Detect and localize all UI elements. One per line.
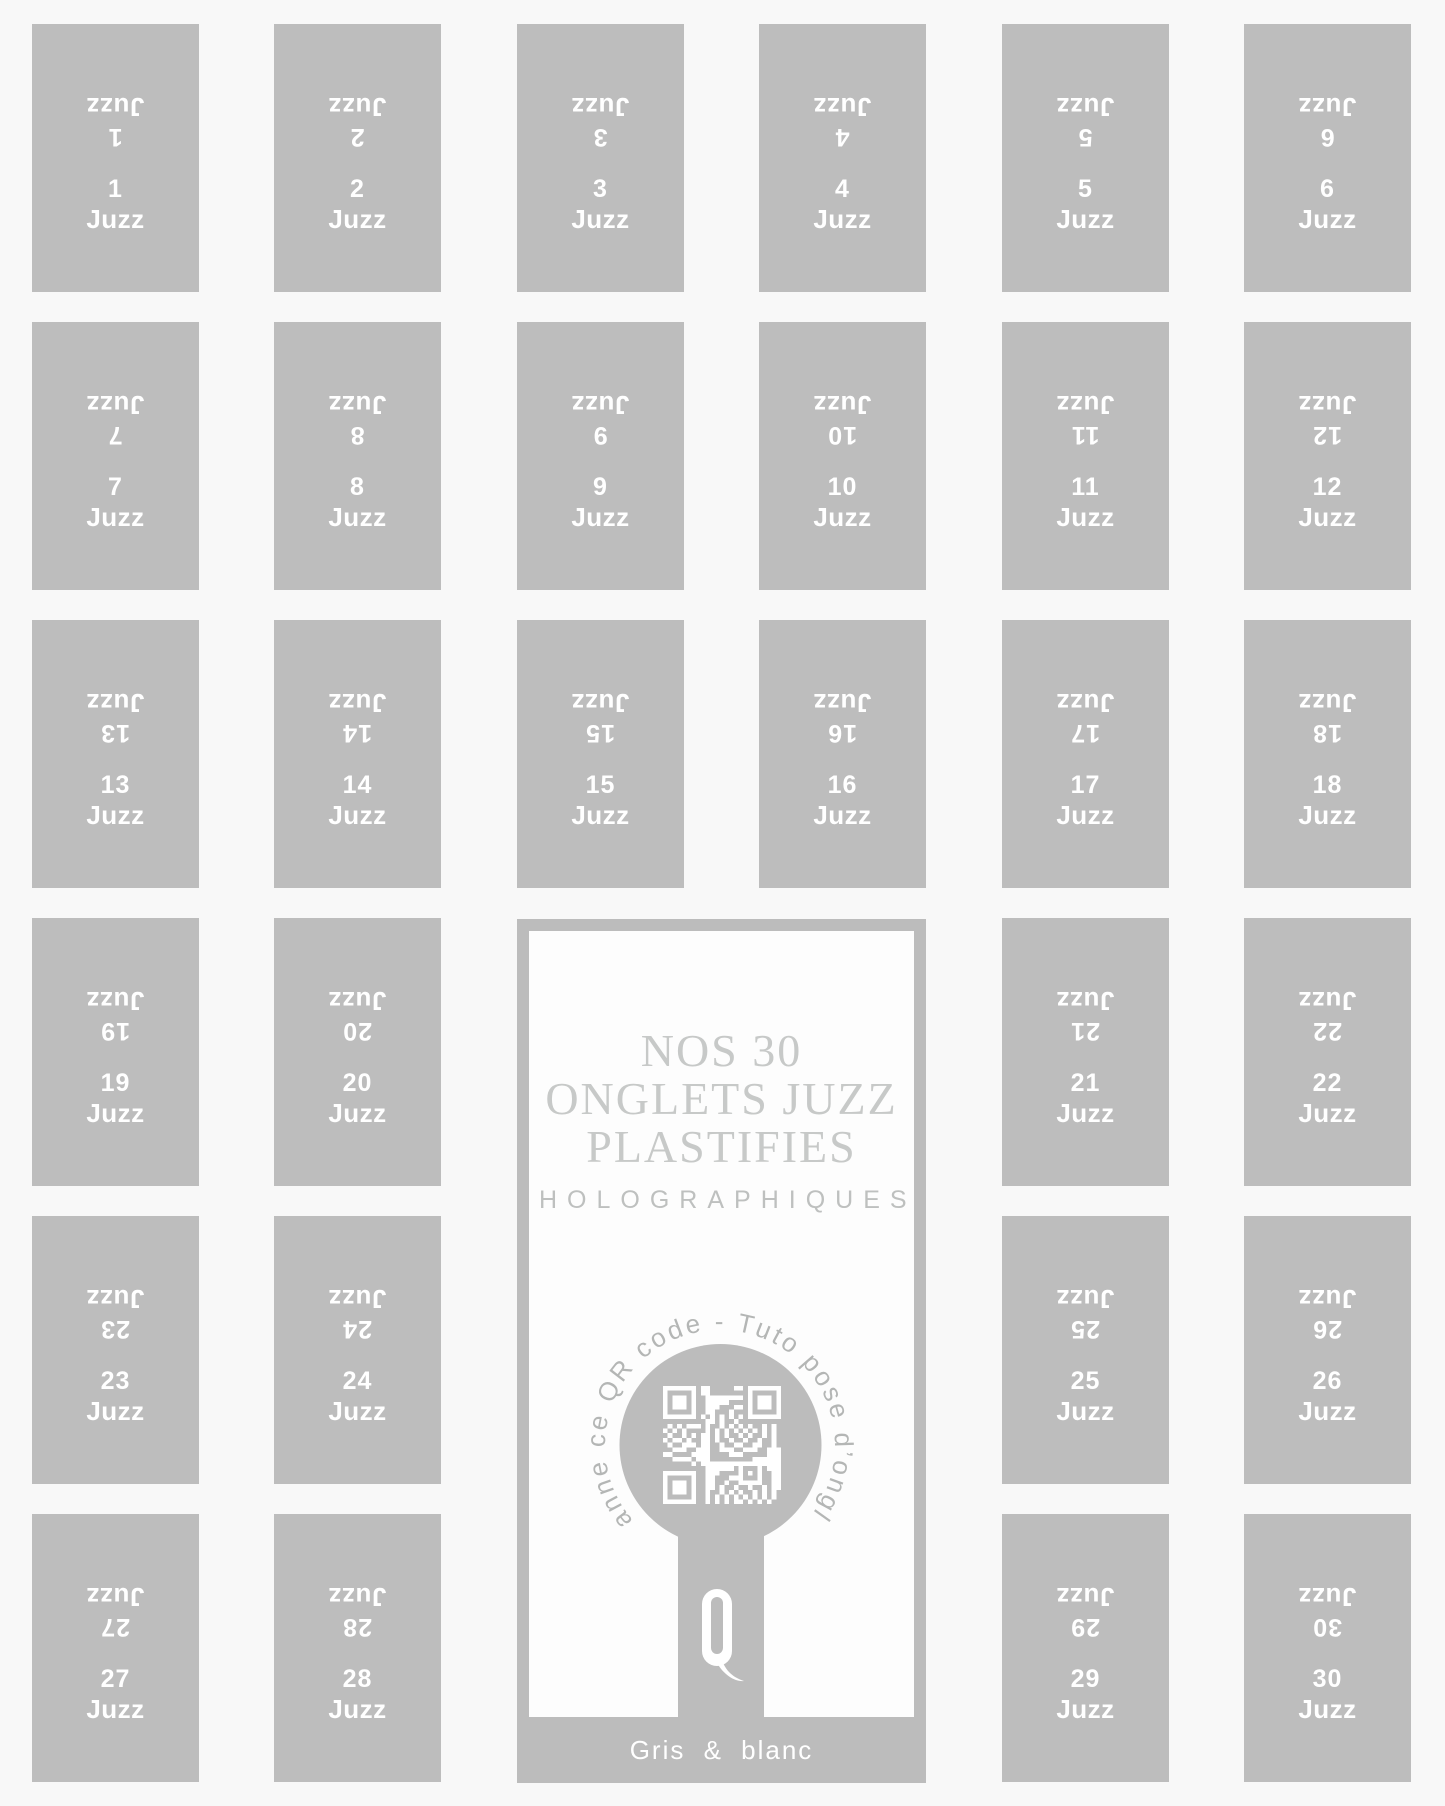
tab-top-label: 24Juzz bbox=[328, 1286, 386, 1341]
tab-word: Juzz bbox=[1298, 1100, 1356, 1126]
tab-top-label: 19Juzz bbox=[86, 988, 144, 1043]
tab-juzz-20: 20Juzz20Juzz bbox=[274, 918, 441, 1186]
tab-word: Juzz bbox=[571, 206, 629, 232]
tab-number: 6 bbox=[1298, 177, 1356, 202]
arc-text: Scanne ce QR code - Tuto pose d’onglets bbox=[507, 895, 859, 1535]
tab-number: 6 bbox=[1298, 124, 1356, 149]
tab-word: Juzz bbox=[813, 206, 871, 232]
tab-top-label: 25Juzz bbox=[1056, 1286, 1114, 1341]
tab-number: 4 bbox=[813, 124, 871, 149]
tab-number: 8 bbox=[328, 475, 386, 500]
tab-juzz-22: 22Juzz22Juzz bbox=[1244, 918, 1411, 1186]
tab-number: 27 bbox=[86, 1667, 144, 1692]
tab-word: Juzz bbox=[1298, 988, 1356, 1014]
tab-word: Juzz bbox=[328, 690, 386, 716]
tab-top-label: 23Juzz bbox=[86, 1286, 144, 1341]
tab-number: 22 bbox=[1298, 1018, 1356, 1043]
tab-number: 10 bbox=[813, 475, 871, 500]
tab-juzz-2: 2Juzz2Juzz bbox=[274, 24, 441, 292]
tab-number: 9 bbox=[571, 475, 629, 500]
tab-top-label: 18Juzz bbox=[1298, 690, 1356, 745]
tab-bottom-label: 9Juzz bbox=[571, 475, 629, 530]
tab-word: Juzz bbox=[86, 206, 144, 232]
tab-top-label: 30Juzz bbox=[1298, 1584, 1356, 1639]
tab-number: 20 bbox=[328, 1018, 386, 1043]
footer-label: Gris & blanc bbox=[630, 1735, 814, 1766]
tab-bottom-label: 27Juzz bbox=[86, 1667, 144, 1722]
panel-title-line-2: ONGLETS JUZZ bbox=[529, 1075, 914, 1123]
center-panel: NOS 30 ONGLETS JUZZ PLASTIFIES HOLOGRAPH… bbox=[517, 919, 926, 1783]
tab-juzz-1: 1Juzz1Juzz bbox=[32, 24, 199, 292]
tab-word: Juzz bbox=[328, 1398, 386, 1424]
tab-bottom-label: 12Juzz bbox=[1298, 475, 1356, 530]
tab-number: 26 bbox=[1298, 1369, 1356, 1394]
tab-word: Juzz bbox=[1056, 802, 1114, 828]
tab-number: 16 bbox=[813, 773, 871, 798]
tab-word: Juzz bbox=[1298, 94, 1356, 120]
tab-bottom-label: 24Juzz bbox=[328, 1369, 386, 1424]
tab-juzz-19: 19Juzz19Juzz bbox=[32, 918, 199, 1186]
tab-juzz-17: 17Juzz17Juzz bbox=[1002, 620, 1169, 888]
tab-word: Juzz bbox=[1298, 1584, 1356, 1610]
tab-bottom-label: 7Juzz bbox=[86, 475, 144, 530]
tab-bottom-label: 28Juzz bbox=[328, 1667, 386, 1722]
tab-word: Juzz bbox=[328, 206, 386, 232]
tab-top-label: 11Juzz bbox=[1056, 392, 1114, 447]
tab-word: Juzz bbox=[86, 1100, 144, 1126]
tab-bottom-label: 18Juzz bbox=[1298, 773, 1356, 828]
tab-top-label: 21Juzz bbox=[1056, 988, 1114, 1043]
tab-number: 26 bbox=[1298, 1316, 1356, 1341]
tab-word: Juzz bbox=[571, 392, 629, 418]
tab-juzz-15: 15Juzz15Juzz bbox=[517, 620, 684, 888]
tab-number: 30 bbox=[1298, 1614, 1356, 1639]
tab-word: Juzz bbox=[328, 1100, 386, 1126]
tab-number: 22 bbox=[1298, 1071, 1356, 1096]
tab-juzz-25: 25Juzz25Juzz bbox=[1002, 1216, 1169, 1484]
tab-bottom-label: 3Juzz bbox=[571, 177, 629, 232]
tab-number: 21 bbox=[1056, 1071, 1114, 1096]
tab-word: Juzz bbox=[86, 504, 144, 530]
tab-number: 3 bbox=[571, 124, 629, 149]
tab-word: Juzz bbox=[1056, 206, 1114, 232]
tab-word: Juzz bbox=[1298, 1696, 1356, 1722]
tab-bottom-label: 1Juzz bbox=[86, 177, 144, 232]
tab-bottom-label: 16Juzz bbox=[813, 773, 871, 828]
tab-top-label: 26Juzz bbox=[1298, 1286, 1356, 1341]
tab-word: Juzz bbox=[1056, 1100, 1114, 1126]
tab-word: Juzz bbox=[328, 504, 386, 530]
tab-bottom-label: 2Juzz bbox=[328, 177, 386, 232]
tab-number: 12 bbox=[1298, 422, 1356, 447]
tab-top-label: 5Juzz bbox=[1056, 94, 1114, 149]
tab-number: 23 bbox=[86, 1369, 144, 1394]
tab-juzz-9: 9Juzz9Juzz bbox=[517, 322, 684, 590]
tab-top-label: 2Juzz bbox=[328, 94, 386, 149]
tab-word: Juzz bbox=[1056, 1584, 1114, 1610]
tab-word: Juzz bbox=[328, 802, 386, 828]
tab-word: Juzz bbox=[1056, 504, 1114, 530]
tab-number: 20 bbox=[328, 1071, 386, 1096]
tab-word: Juzz bbox=[1298, 1398, 1356, 1424]
tab-word: Juzz bbox=[328, 1696, 386, 1722]
tab-word: Juzz bbox=[1298, 1286, 1356, 1312]
tab-word: Juzz bbox=[813, 802, 871, 828]
tab-number: 30 bbox=[1298, 1667, 1356, 1692]
tab-number: 17 bbox=[1056, 720, 1114, 745]
tab-number: 29 bbox=[1056, 1614, 1114, 1639]
tab-juzz-12: 12Juzz12Juzz bbox=[1244, 322, 1411, 590]
tab-number: 14 bbox=[328, 720, 386, 745]
tab-number: 2 bbox=[328, 124, 386, 149]
tab-word: Juzz bbox=[1298, 690, 1356, 716]
tab-bottom-label: 20Juzz bbox=[328, 1071, 386, 1126]
tab-number: 5 bbox=[1056, 124, 1114, 149]
tab-word: Juzz bbox=[86, 988, 144, 1014]
tab-number: 7 bbox=[86, 422, 144, 447]
tab-number: 15 bbox=[571, 720, 629, 745]
tab-word: Juzz bbox=[86, 1696, 144, 1722]
tab-number: 2 bbox=[328, 177, 386, 202]
tab-bottom-label: 29Juzz bbox=[1056, 1667, 1114, 1722]
tab-bottom-label: 11Juzz bbox=[1056, 475, 1114, 530]
tab-bottom-label: 13Juzz bbox=[86, 773, 144, 828]
tab-word: Juzz bbox=[328, 1584, 386, 1610]
tab-word: Juzz bbox=[1056, 1696, 1114, 1722]
tab-bottom-label: 25Juzz bbox=[1056, 1369, 1114, 1424]
qr-code bbox=[663, 1386, 781, 1504]
tab-number: 9 bbox=[571, 422, 629, 447]
tab-juzz-21: 21Juzz21Juzz bbox=[1002, 918, 1169, 1186]
panel-title: NOS 30 ONGLETS JUZZ PLASTIFIES bbox=[529, 1027, 914, 1171]
tab-number: 16 bbox=[813, 720, 871, 745]
tab-number: 5 bbox=[1056, 177, 1114, 202]
logo-stem bbox=[678, 1439, 764, 1717]
tab-number: 29 bbox=[1056, 1667, 1114, 1692]
tab-word: Juzz bbox=[1298, 392, 1356, 418]
tab-word: Juzz bbox=[328, 392, 386, 418]
tab-top-label: 6Juzz bbox=[1298, 94, 1356, 149]
tab-number: 11 bbox=[1056, 475, 1114, 500]
tab-bottom-label: 8Juzz bbox=[328, 475, 386, 530]
tab-word: Juzz bbox=[86, 392, 144, 418]
tab-juzz-18: 18Juzz18Juzz bbox=[1244, 620, 1411, 888]
tab-top-label: 7Juzz bbox=[86, 392, 144, 447]
tab-number: 15 bbox=[571, 773, 629, 798]
tab-bottom-label: 22Juzz bbox=[1298, 1071, 1356, 1126]
tab-juzz-6: 6Juzz6Juzz bbox=[1244, 24, 1411, 292]
tab-juzz-8: 8Juzz8Juzz bbox=[274, 322, 441, 590]
tab-word: Juzz bbox=[571, 802, 629, 828]
tab-word: Juzz bbox=[571, 504, 629, 530]
tab-number: 12 bbox=[1298, 475, 1356, 500]
tab-juzz-11: 11Juzz11Juzz bbox=[1002, 322, 1169, 590]
tab-top-label: 12Juzz bbox=[1298, 392, 1356, 447]
tab-juzz-23: 23Juzz23Juzz bbox=[32, 1216, 199, 1484]
tab-juzz-13: 13Juzz13Juzz bbox=[32, 620, 199, 888]
tab-sheet: 1Juzz1Juzz2Juzz2Juzz3Juzz3Juzz4Juzz4Juzz… bbox=[0, 0, 1445, 1806]
tab-word: Juzz bbox=[86, 690, 144, 716]
tab-number: 19 bbox=[86, 1071, 144, 1096]
tab-juzz-7: 7Juzz7Juzz bbox=[32, 322, 199, 590]
tab-word: Juzz bbox=[1298, 802, 1356, 828]
tab-bottom-label: 26Juzz bbox=[1298, 1369, 1356, 1424]
tab-juzz-5: 5Juzz5Juzz bbox=[1002, 24, 1169, 292]
tab-number: 28 bbox=[328, 1614, 386, 1639]
tab-number: 24 bbox=[328, 1316, 386, 1341]
tab-word: Juzz bbox=[1056, 94, 1114, 120]
tab-bottom-label: 30Juzz bbox=[1298, 1667, 1356, 1722]
tab-juzz-4: 4Juzz4Juzz bbox=[759, 24, 926, 292]
tab-word: Juzz bbox=[1056, 690, 1114, 716]
tab-bottom-label: 21Juzz bbox=[1056, 1071, 1114, 1126]
tab-word: Juzz bbox=[1298, 504, 1356, 530]
tab-number: 19 bbox=[86, 1018, 144, 1043]
tab-number: 13 bbox=[86, 773, 144, 798]
tab-word: Juzz bbox=[571, 690, 629, 716]
tab-number: 8 bbox=[328, 422, 386, 447]
footer-band: Gris & blanc bbox=[517, 1717, 926, 1783]
tab-top-label: 29Juzz bbox=[1056, 1584, 1114, 1639]
tab-top-label: 8Juzz bbox=[328, 392, 386, 447]
tab-bottom-label: 4Juzz bbox=[813, 177, 871, 232]
tab-number: 11 bbox=[1056, 422, 1114, 447]
tab-juzz-16: 16Juzz16Juzz bbox=[759, 620, 926, 888]
tab-number: 25 bbox=[1056, 1316, 1114, 1341]
tab-number: 3 bbox=[571, 177, 629, 202]
tab-word: Juzz bbox=[813, 690, 871, 716]
tab-bottom-label: 15Juzz bbox=[571, 773, 629, 828]
tab-bottom-label: 10Juzz bbox=[813, 475, 871, 530]
tab-top-label: 9Juzz bbox=[571, 392, 629, 447]
tab-word: Juzz bbox=[813, 392, 871, 418]
tab-word: Juzz bbox=[86, 1398, 144, 1424]
tab-word: Juzz bbox=[1056, 1398, 1114, 1424]
tab-number: 4 bbox=[813, 177, 871, 202]
tab-word: Juzz bbox=[86, 802, 144, 828]
tab-juzz-14: 14Juzz14Juzz bbox=[274, 620, 441, 888]
tab-number: 21 bbox=[1056, 1018, 1114, 1043]
tab-juzz-3: 3Juzz3Juzz bbox=[517, 24, 684, 292]
tab-top-label: 16Juzz bbox=[813, 690, 871, 745]
tab-top-label: 1Juzz bbox=[86, 94, 144, 149]
tab-word: Juzz bbox=[328, 988, 386, 1014]
tab-number: 18 bbox=[1298, 773, 1356, 798]
tab-juzz-27: 27Juzz27Juzz bbox=[32, 1514, 199, 1782]
q-logo bbox=[702, 1589, 744, 1681]
tab-word: Juzz bbox=[86, 1584, 144, 1610]
tab-bottom-label: 19Juzz bbox=[86, 1071, 144, 1126]
tab-juzz-10: 10Juzz10Juzz bbox=[759, 322, 926, 590]
tab-juzz-28: 28Juzz28Juzz bbox=[274, 1514, 441, 1782]
tab-top-label: 14Juzz bbox=[328, 690, 386, 745]
arc-caption: Scanne ce QR code - Tuto pose d’onglets bbox=[507, 895, 859, 1535]
tab-number: 17 bbox=[1056, 773, 1114, 798]
tab-number: 24 bbox=[328, 1369, 386, 1394]
tab-top-label: 13Juzz bbox=[86, 690, 144, 745]
tab-top-label: 27Juzz bbox=[86, 1584, 144, 1639]
tab-juzz-29: 29Juzz29Juzz bbox=[1002, 1514, 1169, 1782]
tab-word: Juzz bbox=[328, 1286, 386, 1312]
tab-top-label: 22Juzz bbox=[1298, 988, 1356, 1043]
tab-word: Juzz bbox=[86, 1286, 144, 1312]
tab-number: 18 bbox=[1298, 720, 1356, 745]
tab-word: Juzz bbox=[328, 94, 386, 120]
tab-bottom-label: 5Juzz bbox=[1056, 177, 1114, 232]
tab-word: Juzz bbox=[1056, 392, 1114, 418]
tab-bottom-label: 14Juzz bbox=[328, 773, 386, 828]
tab-word: Juzz bbox=[86, 94, 144, 120]
tab-number: 27 bbox=[86, 1614, 144, 1639]
tab-number: 7 bbox=[86, 475, 144, 500]
tab-number: 1 bbox=[86, 124, 144, 149]
tab-word: Juzz bbox=[1056, 988, 1114, 1014]
tab-top-label: 28Juzz bbox=[328, 1584, 386, 1639]
tab-number: 13 bbox=[86, 720, 144, 745]
tab-number: 14 bbox=[328, 773, 386, 798]
tab-top-label: 4Juzz bbox=[813, 94, 871, 149]
tab-number: 10 bbox=[813, 422, 871, 447]
panel-title-line-1: NOS 30 bbox=[529, 1027, 914, 1075]
panel-subtitle: HOLOGRAPHIQUES bbox=[529, 1186, 914, 1215]
panel-title-line-3: PLASTIFIES bbox=[529, 1123, 914, 1171]
tab-word: Juzz bbox=[571, 94, 629, 120]
tab-juzz-30: 30Juzz30Juzz bbox=[1244, 1514, 1411, 1782]
tab-bottom-label: 17Juzz bbox=[1056, 773, 1114, 828]
tab-top-label: 17Juzz bbox=[1056, 690, 1114, 745]
tab-top-label: 3Juzz bbox=[571, 94, 629, 149]
tab-word: Juzz bbox=[1298, 206, 1356, 232]
tab-number: 23 bbox=[86, 1316, 144, 1341]
tab-juzz-24: 24Juzz24Juzz bbox=[274, 1216, 441, 1484]
tab-bottom-label: 23Juzz bbox=[86, 1369, 144, 1424]
tab-bottom-label: 6Juzz bbox=[1298, 177, 1356, 232]
tab-top-label: 15Juzz bbox=[571, 690, 629, 745]
tab-number: 28 bbox=[328, 1667, 386, 1692]
tab-top-label: 20Juzz bbox=[328, 988, 386, 1043]
tab-word: Juzz bbox=[1056, 1286, 1114, 1312]
tab-number: 1 bbox=[86, 177, 144, 202]
tab-top-label: 10Juzz bbox=[813, 392, 871, 447]
tab-juzz-26: 26Juzz26Juzz bbox=[1244, 1216, 1411, 1484]
tab-word: Juzz bbox=[813, 94, 871, 120]
tab-number: 25 bbox=[1056, 1369, 1114, 1394]
tab-word: Juzz bbox=[813, 504, 871, 530]
qr-circle bbox=[620, 1344, 822, 1546]
